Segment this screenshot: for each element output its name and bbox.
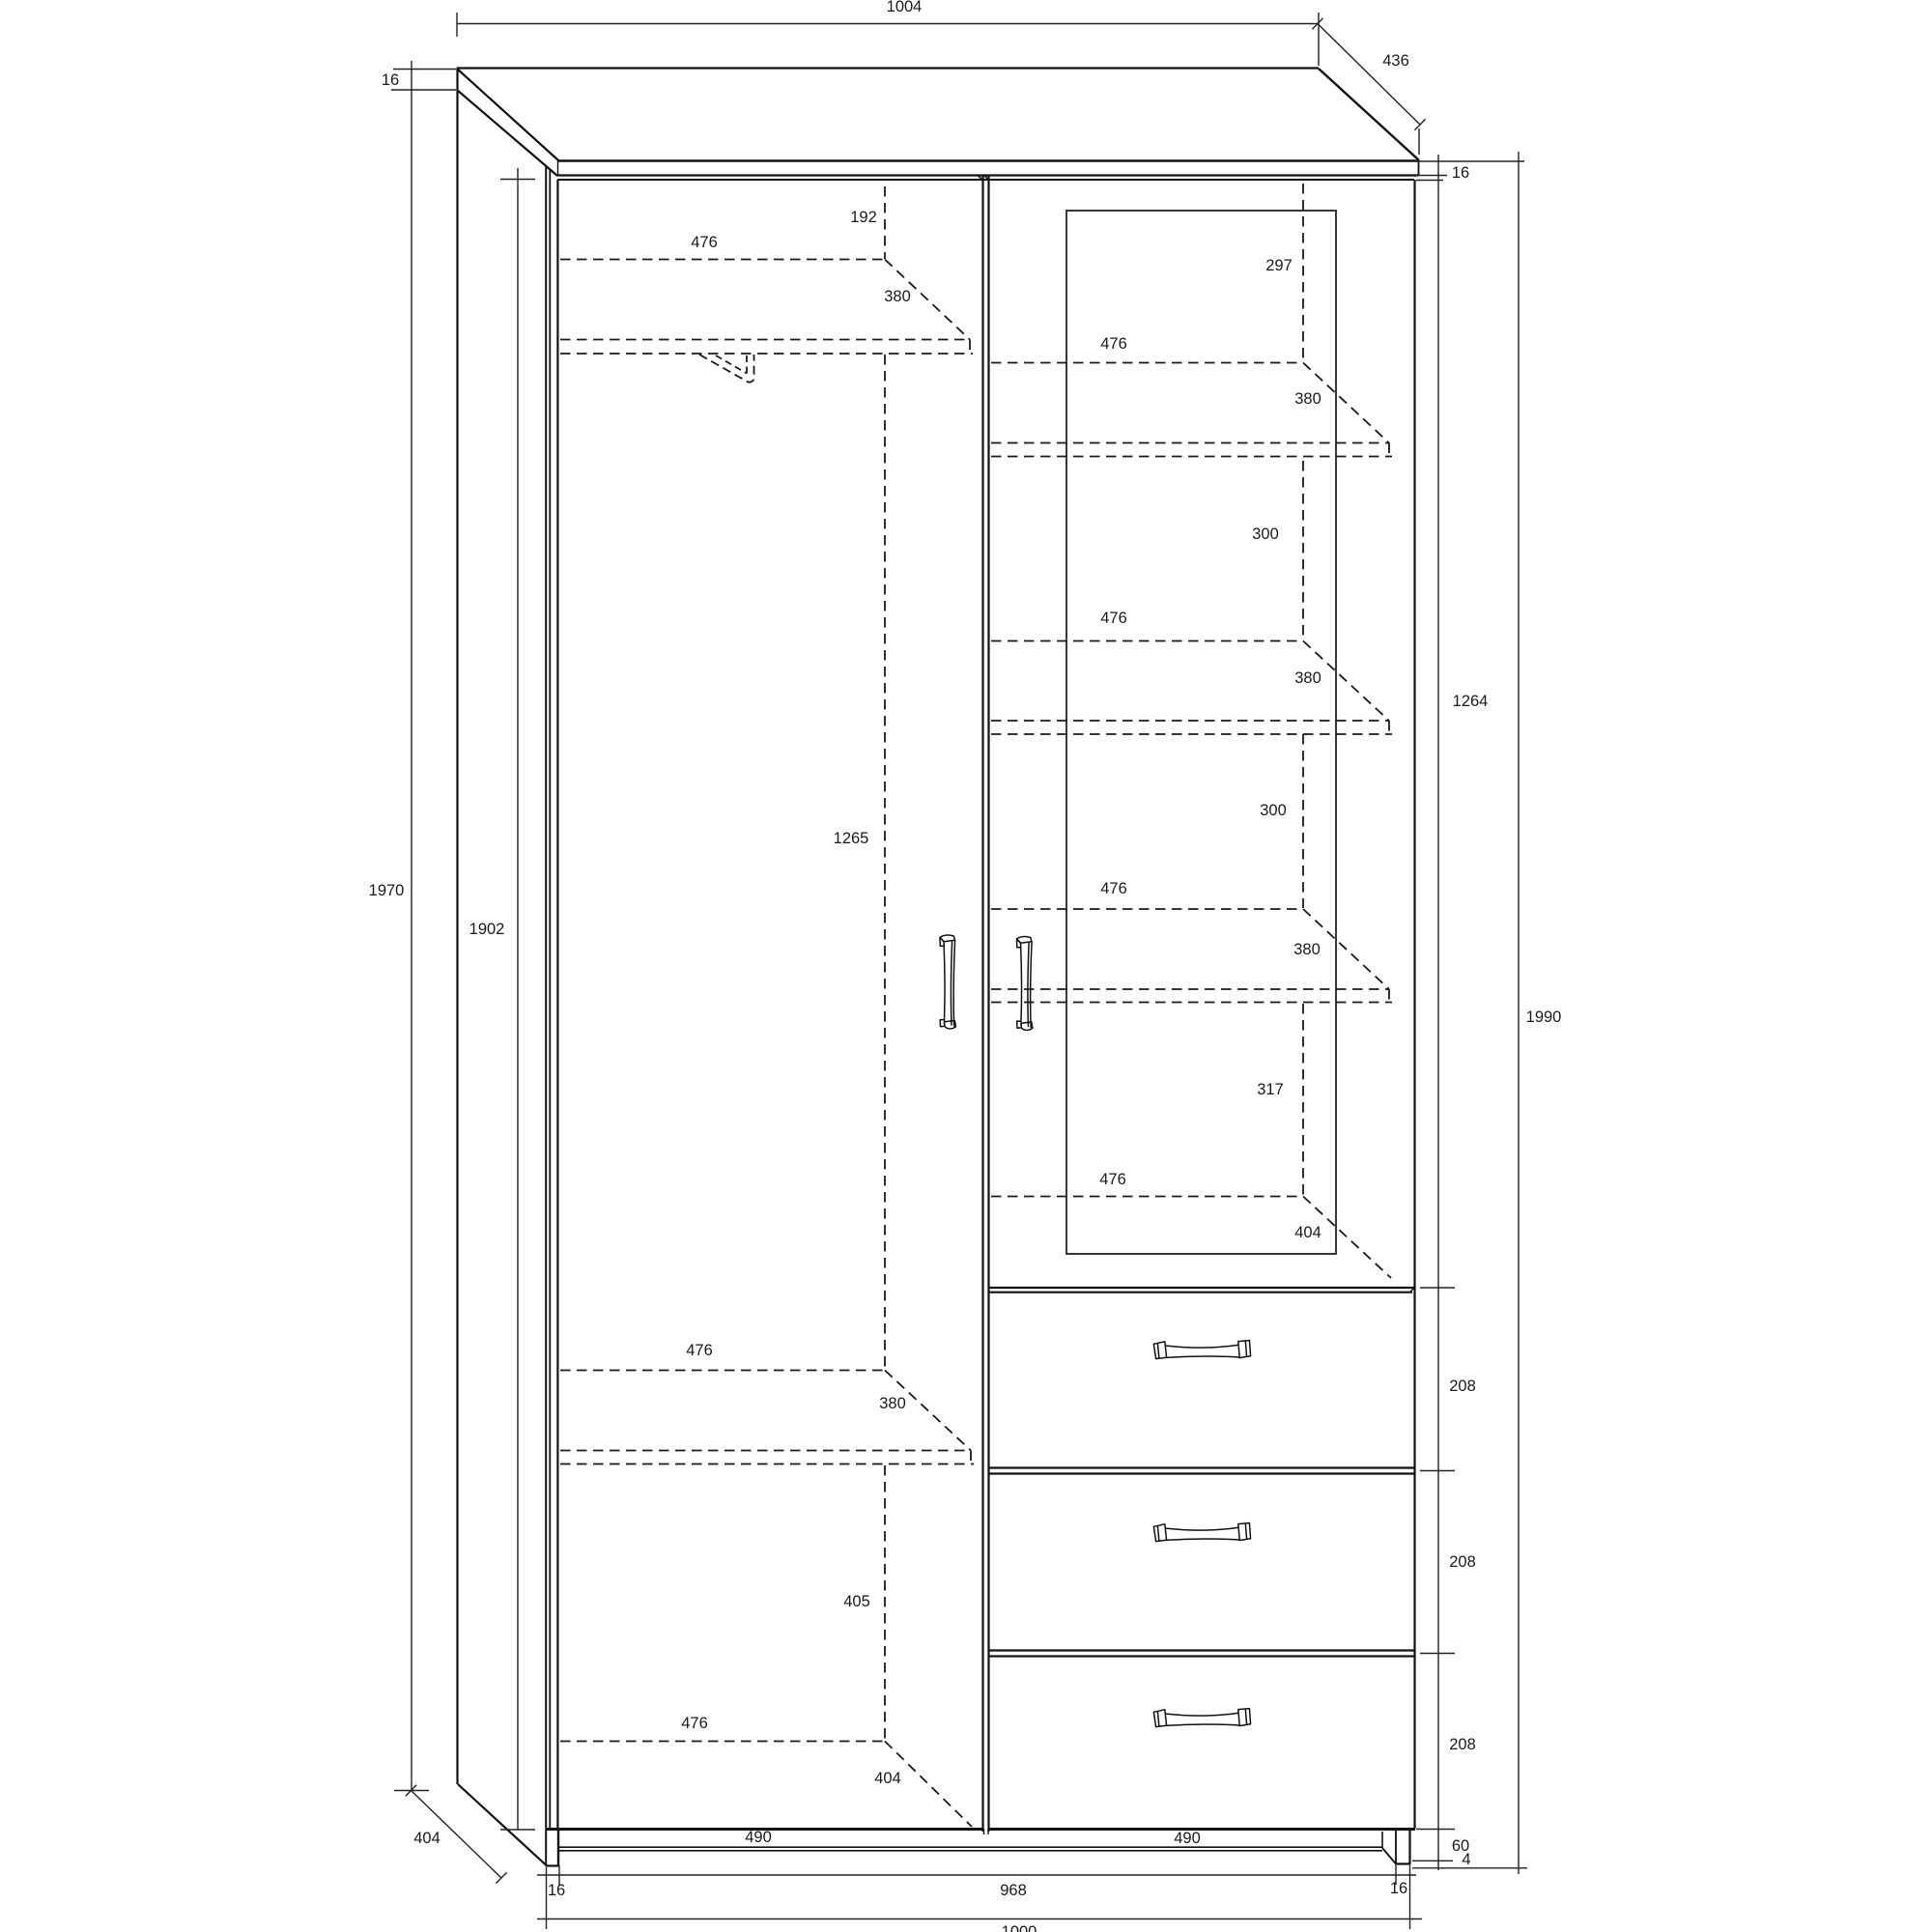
svg-text:1902: 1902 [469,921,505,938]
svg-text:1004: 1004 [887,0,923,15]
svg-text:317: 317 [1257,1081,1284,1098]
svg-text:476: 476 [681,1715,708,1732]
svg-text:490: 490 [745,1829,772,1846]
svg-text:380: 380 [884,288,911,305]
svg-text:297: 297 [1265,257,1293,274]
svg-text:192: 192 [850,209,877,226]
svg-text:208: 208 [1449,1378,1476,1395]
svg-text:208: 208 [1449,1553,1476,1571]
svg-text:405: 405 [843,1593,870,1610]
svg-text:968: 968 [1000,1882,1027,1899]
svg-text:4: 4 [1462,1851,1470,1868]
svg-text:436: 436 [1382,52,1409,70]
svg-text:404: 404 [413,1830,440,1847]
svg-text:1970: 1970 [369,882,405,899]
svg-text:380: 380 [1294,390,1321,408]
svg-text:16: 16 [548,1882,565,1899]
svg-text:404: 404 [1294,1224,1321,1241]
svg-text:404: 404 [874,1770,901,1787]
svg-text:476: 476 [686,1342,713,1359]
svg-text:476: 476 [1099,1171,1126,1188]
svg-text:300: 300 [1260,802,1287,819]
svg-text:1264: 1264 [1453,693,1489,710]
svg-text:476: 476 [1100,610,1127,627]
svg-text:1000: 1000 [1002,1923,1037,1932]
svg-text:16: 16 [382,71,399,89]
svg-text:476: 476 [691,234,718,251]
svg-text:476: 476 [1100,880,1127,897]
svg-text:476: 476 [1100,335,1127,353]
svg-text:16: 16 [1452,164,1469,182]
svg-text:490: 490 [1174,1830,1201,1847]
svg-text:380: 380 [879,1395,906,1412]
svg-text:380: 380 [1293,941,1321,958]
svg-text:1990: 1990 [1526,1009,1562,1026]
svg-text:208: 208 [1449,1736,1476,1753]
svg-text:380: 380 [1294,669,1321,687]
svg-text:300: 300 [1252,526,1279,543]
svg-text:1265: 1265 [834,830,869,847]
svg-text:16: 16 [1390,1880,1407,1897]
